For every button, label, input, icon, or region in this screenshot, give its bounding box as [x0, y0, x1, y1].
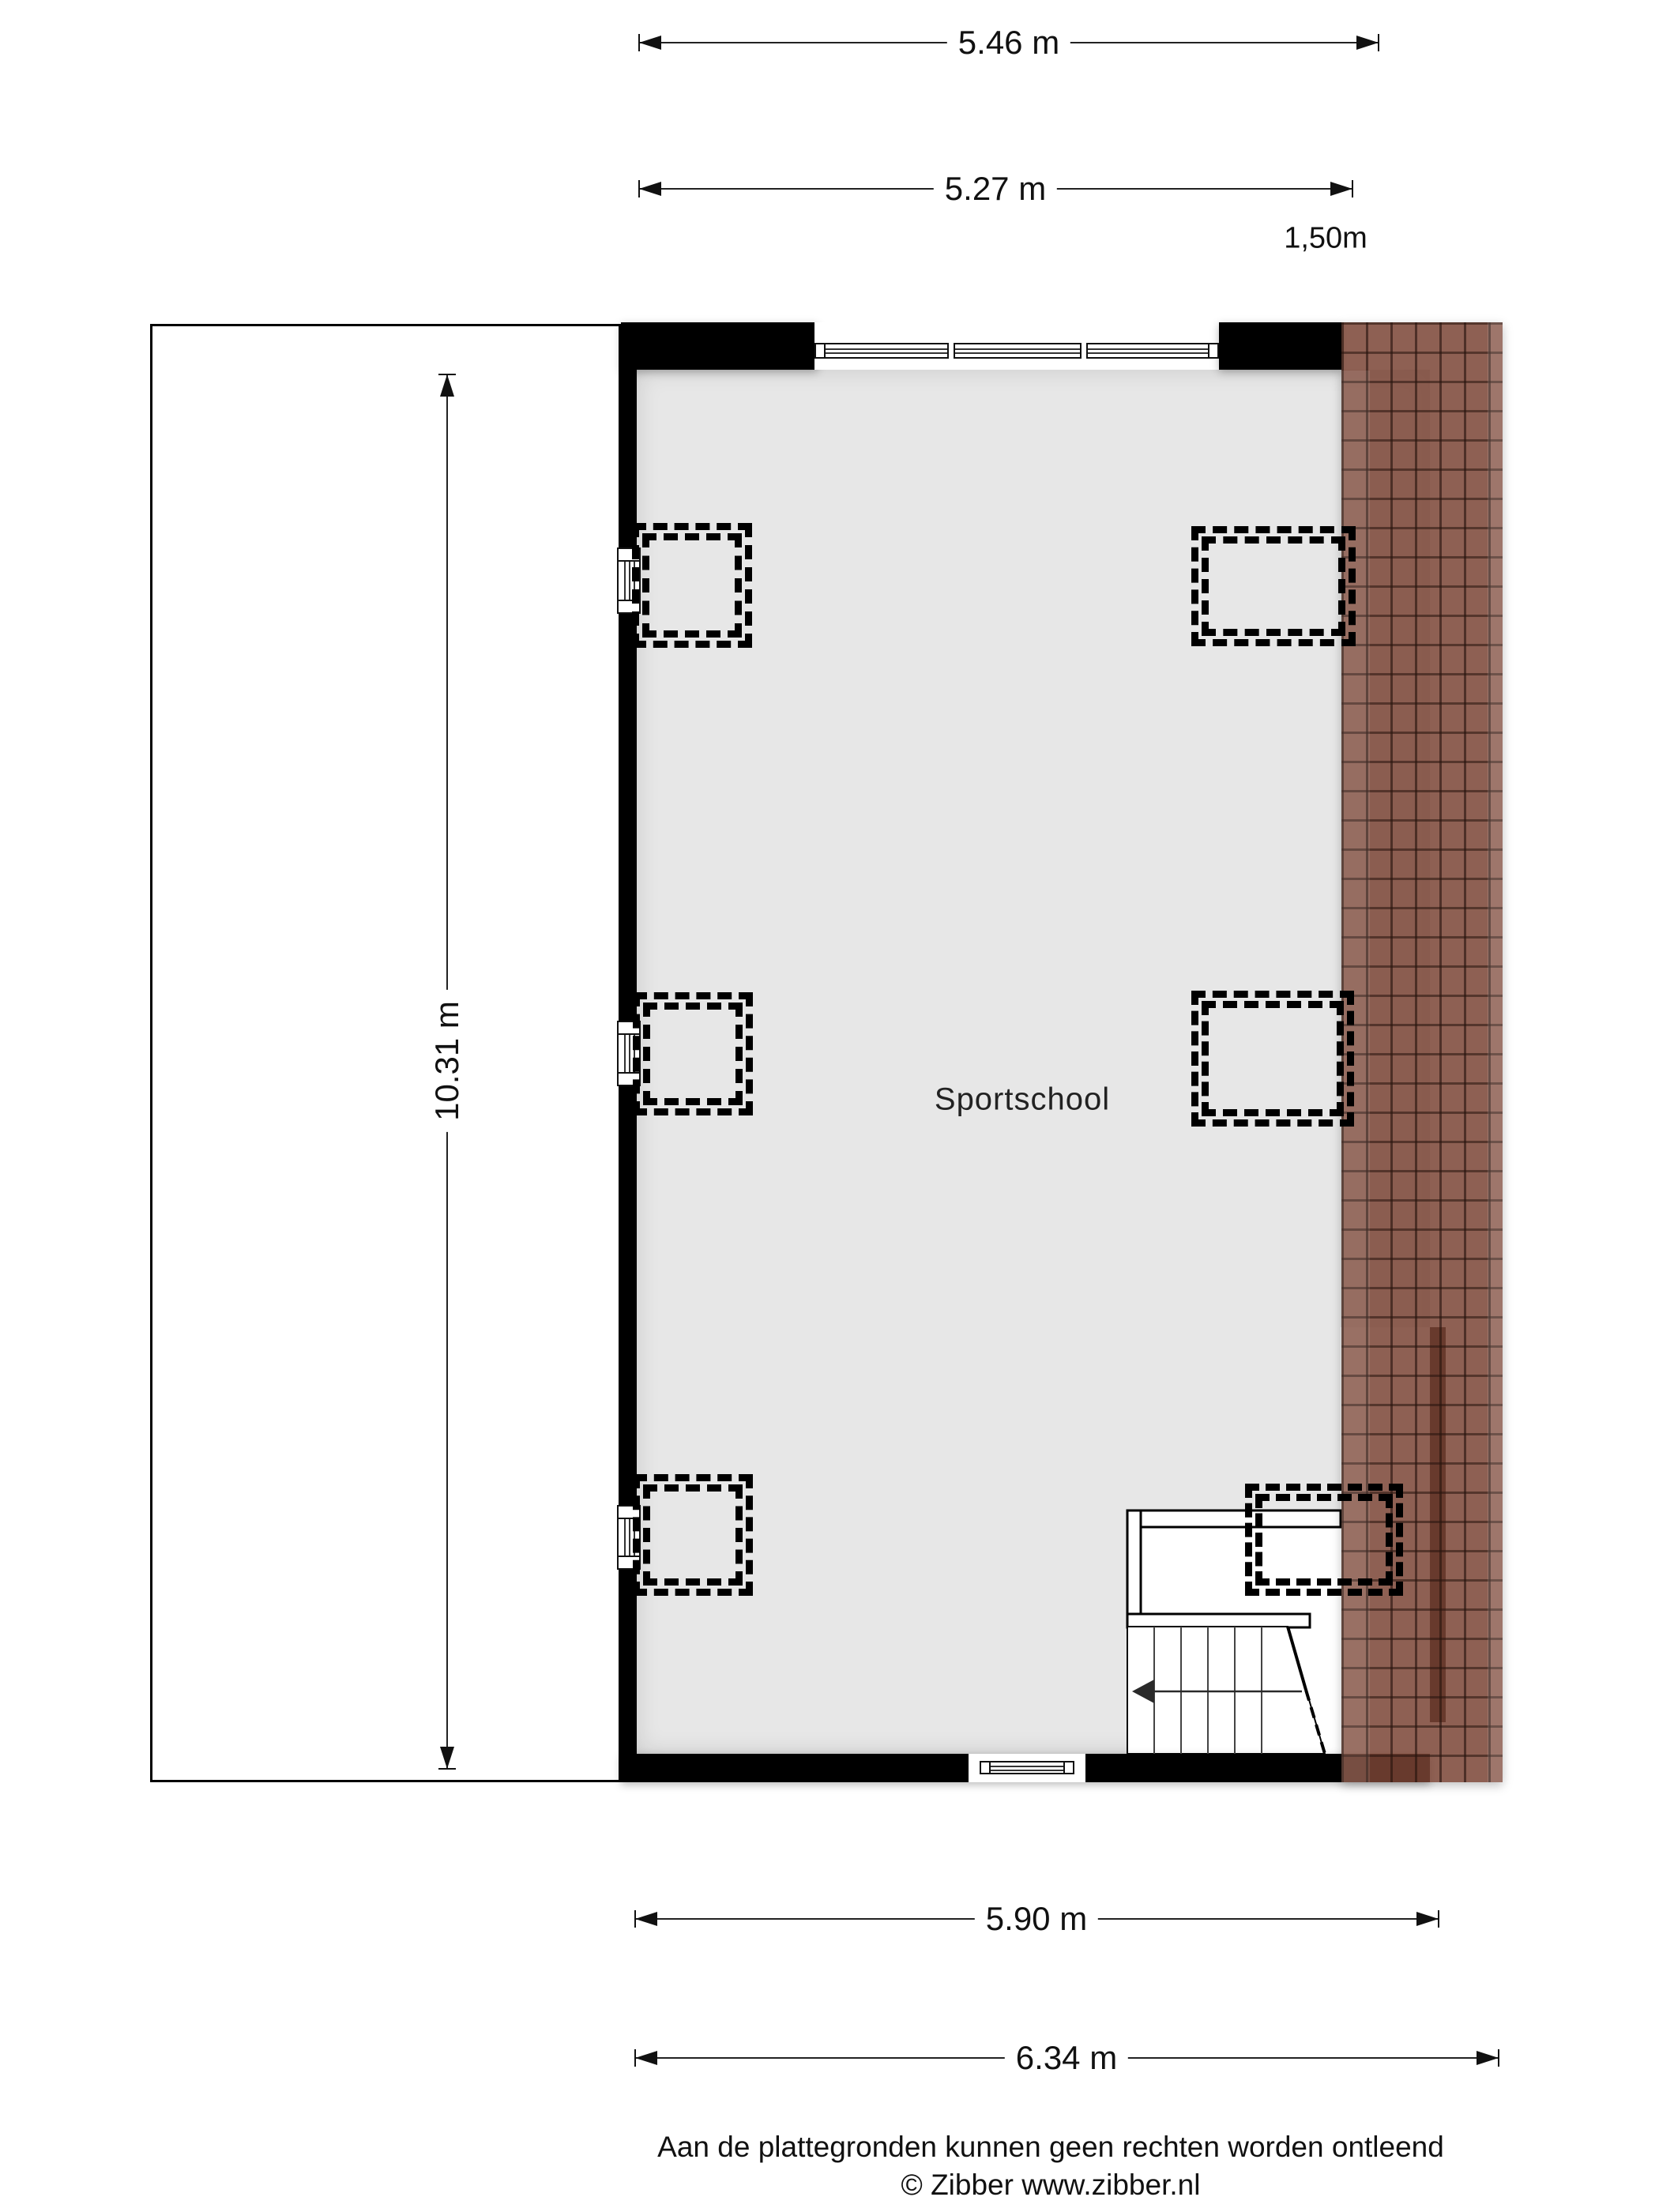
footer-disclaimer: Aan de plattegronden kunnen geen rechten…: [442, 2128, 1659, 2204]
void-dashed-square-top-left: [632, 523, 752, 648]
void-dashed-square-mid-left: [633, 992, 753, 1115]
void-dashed-square-bottom-right: [1245, 1484, 1403, 1596]
top-window: [814, 343, 1219, 359]
footer-line2: © Zibber www.zibber.nl: [442, 2166, 1659, 2204]
top-wall-right-segment: [1219, 322, 1341, 370]
floorplan-canvas: Sportschool 5.46 m 5.27 m 1,50m 10.31 m …: [0, 0, 1659, 2212]
bottom-window: [980, 1761, 1074, 1774]
headroom-label: 1,50m: [1284, 222, 1367, 256]
void-dashed-square-mid-right: [1191, 991, 1354, 1127]
outer-building-outline: [150, 324, 621, 1782]
dimension-label-bottom-outer: 6.34 m: [1005, 2039, 1128, 2077]
void-dashed-square-bottom-left: [633, 1474, 753, 1596]
dimension-label-left-height: 10.31 m: [428, 990, 466, 1132]
dimension-label-top-inner: 5.27 m: [934, 170, 1057, 208]
top-wall-left-segment: [621, 322, 818, 370]
dimension-label-top-outer: 5.46 m: [947, 24, 1070, 62]
footer-line1: Aan de plattegronden kunnen geen rechten…: [442, 2128, 1659, 2166]
void-dashed-square-top-right: [1191, 526, 1356, 646]
roof-light-strip-right: [1488, 322, 1503, 1782]
dimension-label-bottom-inner: 5.90 m: [975, 1900, 1098, 1938]
room-name-label: Sportschool: [935, 1082, 1110, 1118]
